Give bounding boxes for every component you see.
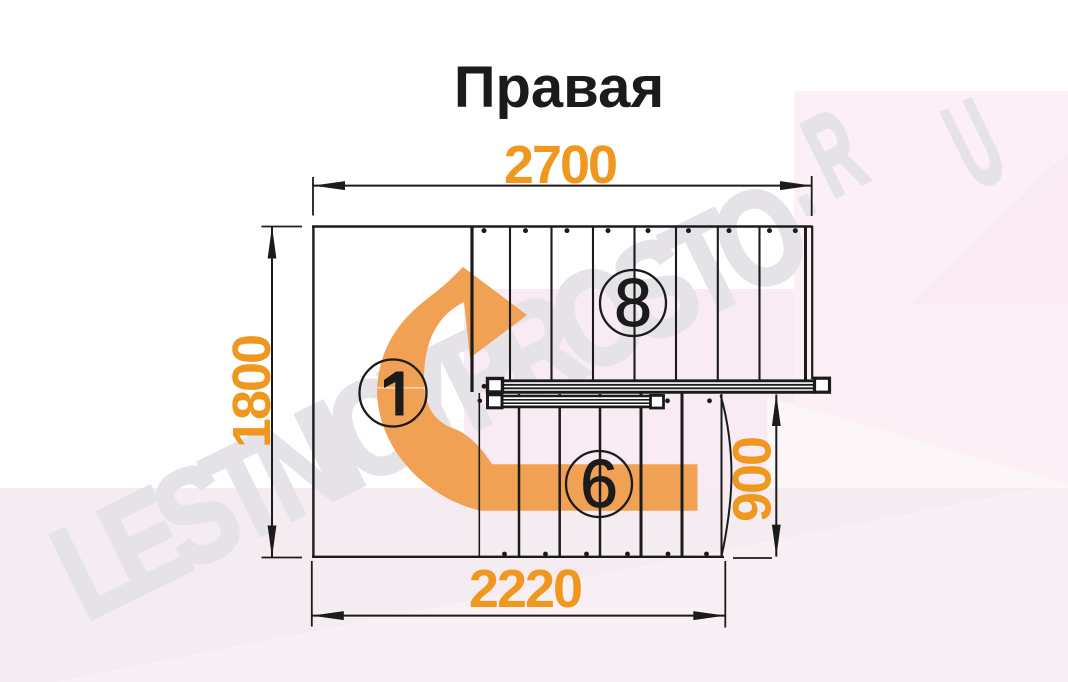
svg-text:2220: 2220: [469, 559, 581, 619]
svg-text:2700: 2700: [504, 135, 616, 195]
svg-text:8: 8: [614, 265, 652, 341]
svg-text:1800: 1800: [222, 336, 282, 448]
svg-text:6: 6: [580, 446, 618, 522]
svg-text:Правая: Правая: [454, 55, 664, 120]
svg-text:900: 900: [723, 438, 783, 522]
